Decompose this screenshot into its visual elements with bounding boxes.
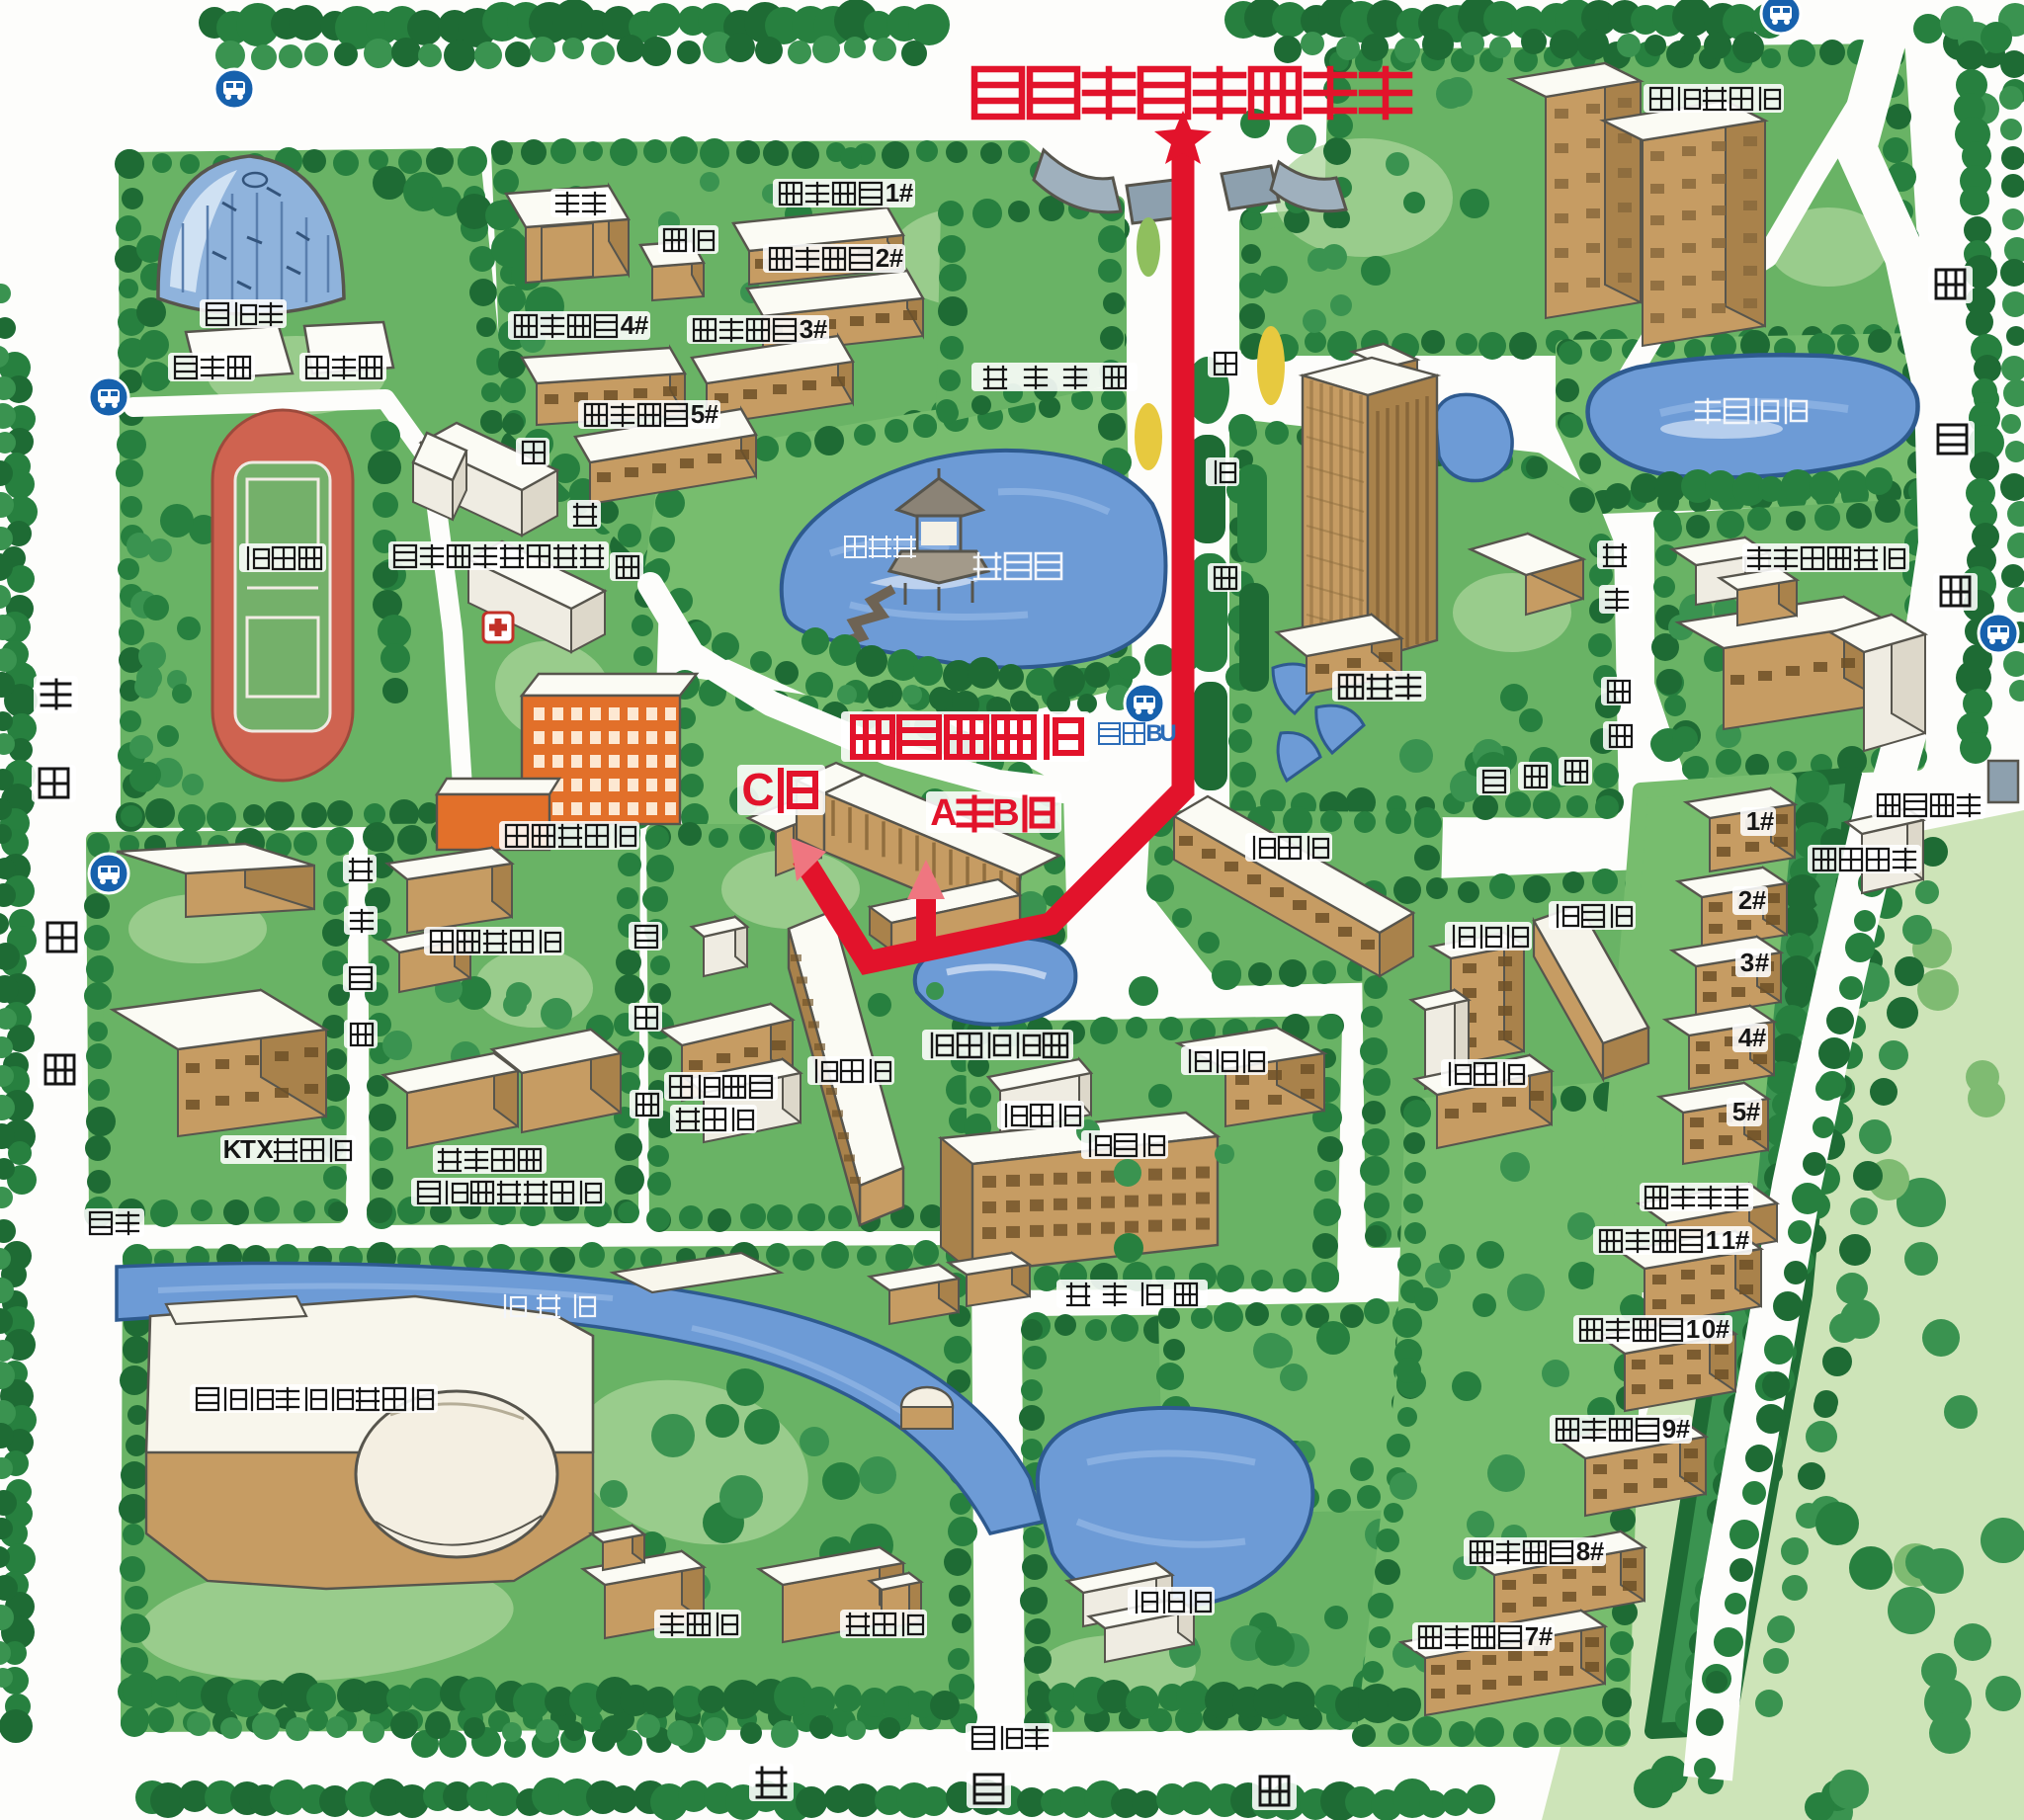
svg-text:1: 1 <box>1706 1225 1720 1255</box>
svg-text:5: 5 <box>1732 1097 1746 1126</box>
svg-text:1: 1 <box>885 178 899 207</box>
svg-text:4: 4 <box>1738 1023 1753 1052</box>
svg-text:4: 4 <box>621 310 635 340</box>
svg-text:1: 1 <box>1722 1225 1735 1255</box>
svg-text:2: 2 <box>876 243 889 273</box>
svg-text:#: # <box>1539 1621 1554 1651</box>
svg-text:7: 7 <box>1525 1621 1539 1651</box>
svg-text:U: U <box>1159 720 1176 747</box>
svg-text:2: 2 <box>1738 885 1752 915</box>
svg-text:B: B <box>992 792 1019 834</box>
svg-text:A: A <box>930 792 957 834</box>
svg-text:#: # <box>1735 1225 1750 1255</box>
svg-text:X: X <box>256 1134 274 1164</box>
svg-text:K: K <box>223 1134 242 1164</box>
svg-text:#: # <box>889 243 904 273</box>
svg-text:3: 3 <box>1740 948 1754 977</box>
svg-text:9: 9 <box>1662 1414 1676 1444</box>
svg-text:C: C <box>741 764 774 815</box>
svg-text:#: # <box>705 399 719 429</box>
svg-text:#: # <box>1716 1314 1730 1344</box>
svg-text:#: # <box>1755 948 1770 977</box>
svg-text:#: # <box>813 314 828 344</box>
svg-text:#: # <box>1752 1023 1767 1052</box>
svg-text:T: T <box>240 1134 256 1164</box>
svg-text:1: 1 <box>1746 806 1760 836</box>
svg-text:#: # <box>899 178 914 207</box>
svg-text:#: # <box>1760 806 1775 836</box>
svg-text:#: # <box>634 310 649 340</box>
svg-text:5: 5 <box>691 399 705 429</box>
svg-text:#: # <box>1752 885 1767 915</box>
svg-text:#: # <box>1746 1097 1761 1126</box>
svg-text:1: 1 <box>1686 1314 1700 1344</box>
svg-text:0: 0 <box>1702 1314 1716 1344</box>
svg-text:#: # <box>1590 1536 1605 1566</box>
svg-text:8: 8 <box>1576 1536 1590 1566</box>
svg-text:#: # <box>1676 1414 1691 1444</box>
svg-text:3: 3 <box>800 314 813 344</box>
